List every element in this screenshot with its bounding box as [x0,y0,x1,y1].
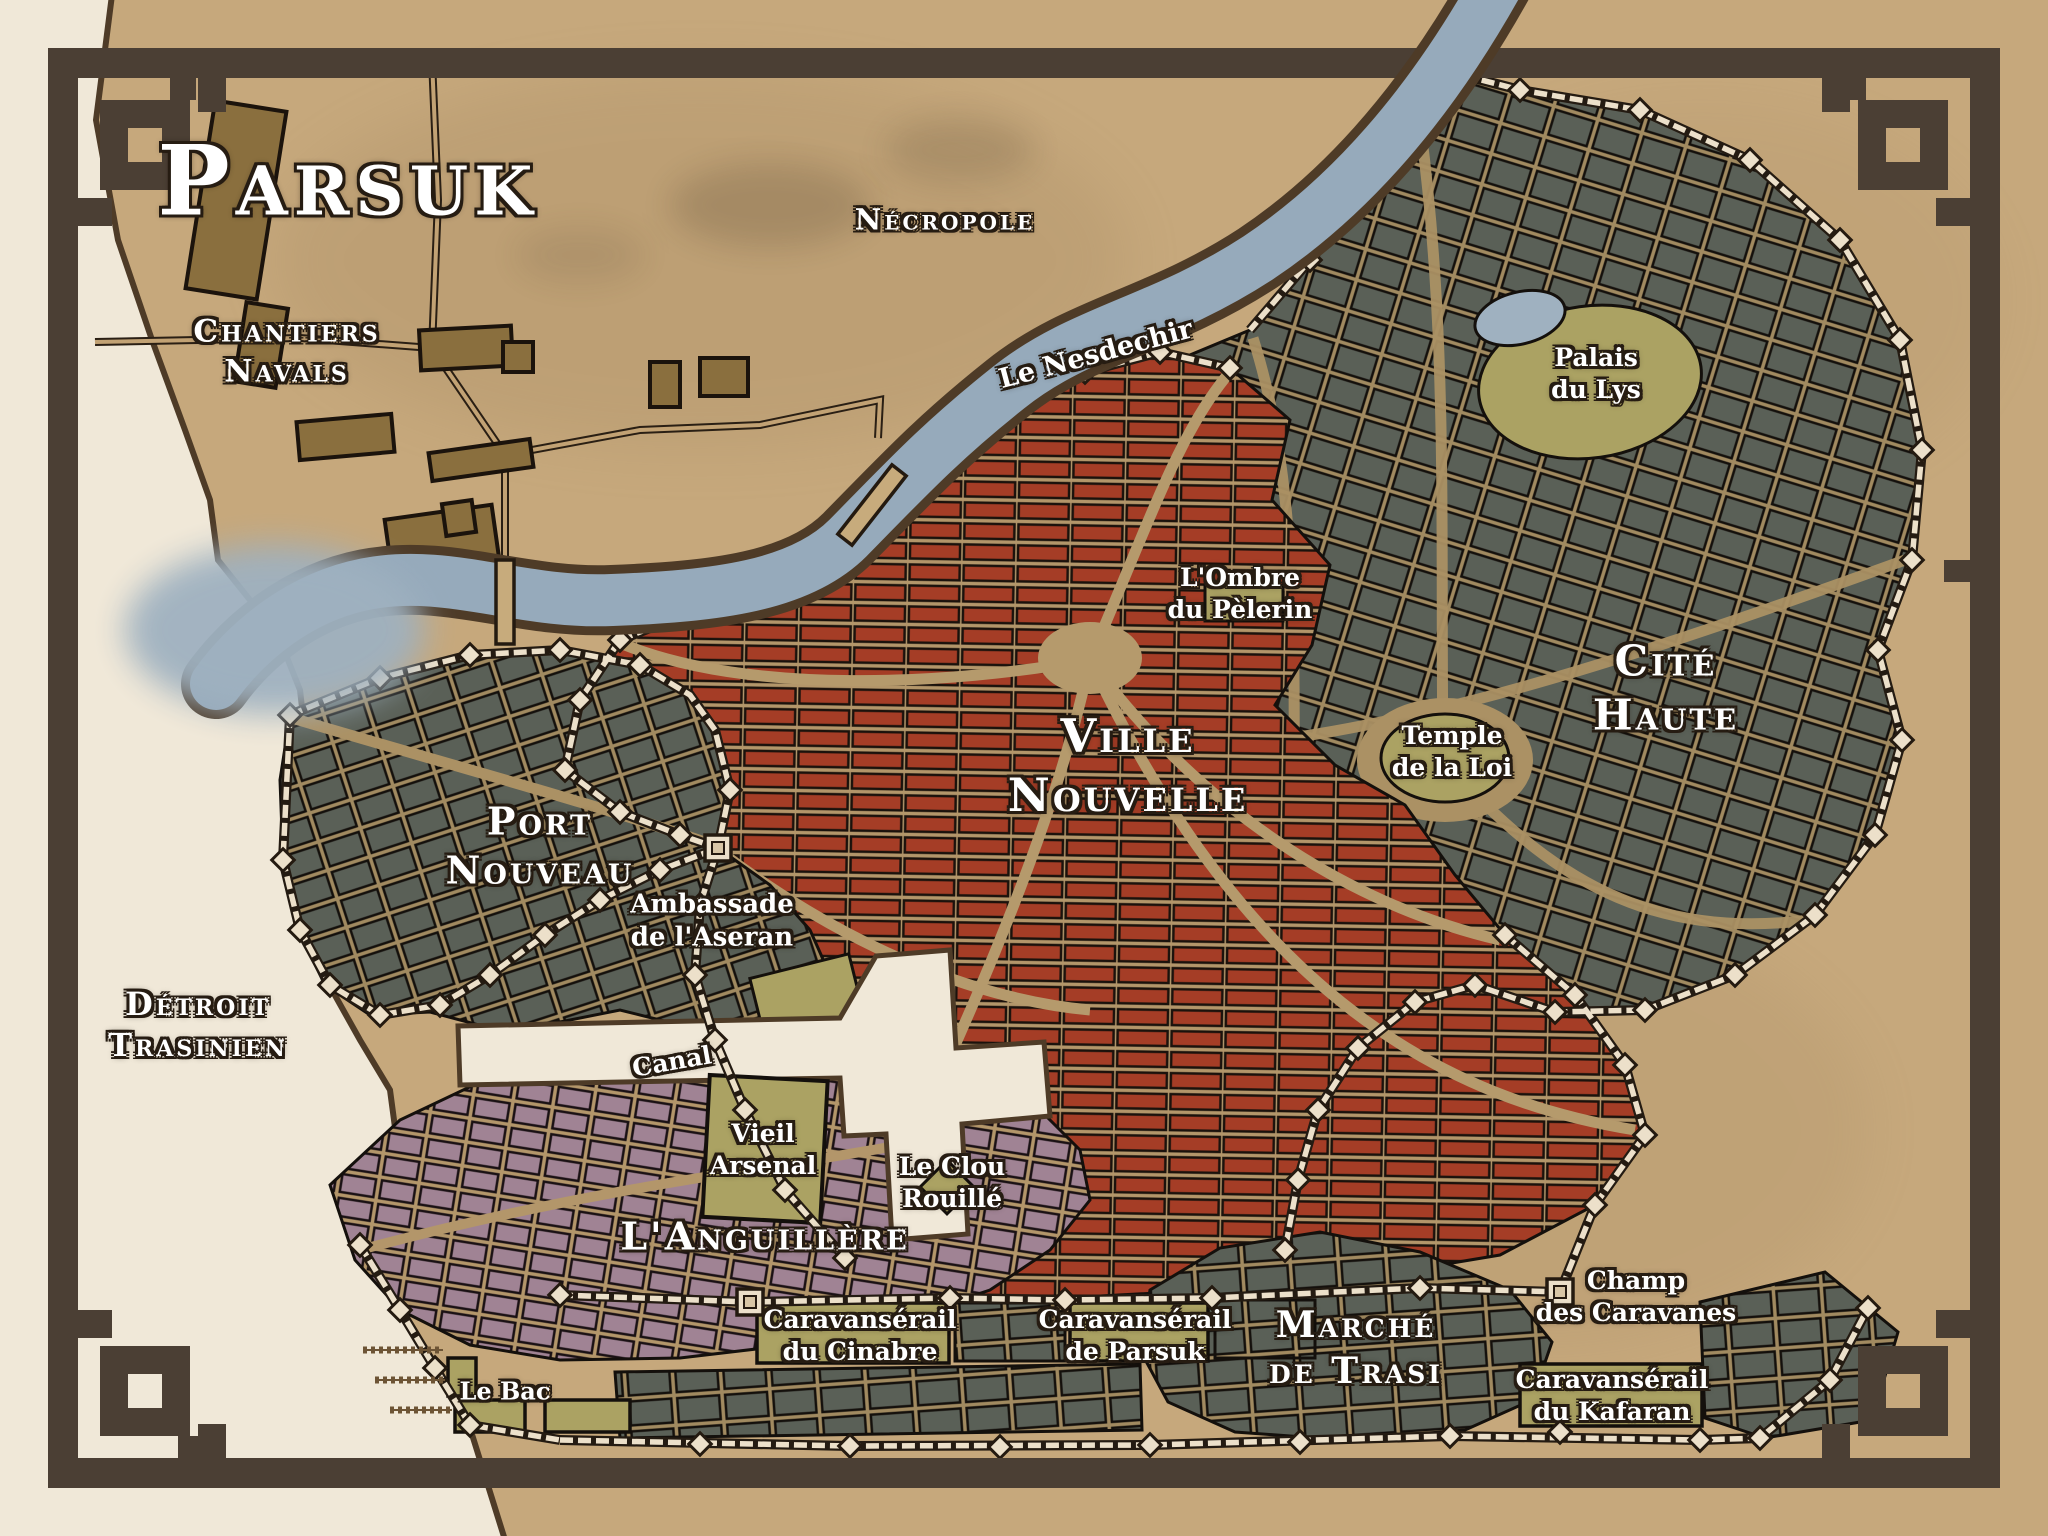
label-line: Port [487,798,593,843]
label-ville-nouvelle: Ville Nouvelle [1008,707,1248,825]
label-line: Champ [1587,1266,1685,1295]
label-palais-du-lys: Palais du Lys [1551,342,1641,406]
label-line: Caravansérail [764,1305,957,1334]
label-line: Vieil [731,1119,794,1148]
label-line: L'Ombre [1180,563,1300,592]
label-line: de la Loi [1392,753,1512,782]
label-line: Chantiers [193,313,380,349]
label-line: Marché [1276,1304,1437,1346]
label-line: Le Clou [899,1152,1005,1181]
label-line: Trasinien [108,1026,288,1064]
label-ambassade-aseran: Ambassade de l'Aseran [630,889,794,956]
label-necropole: Nécropole [855,201,1035,238]
map-title: Parsuk [158,121,539,244]
label-line: Ambassade [630,890,794,920]
fantasy-city-map: Parsuk Chantiers Navals Nécropole Le Nes… [0,0,2048,1536]
label-line: Haute [1593,690,1739,739]
label-line: Ville [1060,709,1195,763]
label-caravanserail-cinabre: Caravansérail du Cinabre [764,1304,957,1368]
label-line: de Trasi [1269,1350,1443,1392]
label-line: Caravansérail [1516,1365,1709,1394]
label-marche-de-trasi: Marché de Trasi [1269,1302,1443,1394]
label-le-bac: Le Bac [460,1377,551,1408]
label-line: du Cinabre [783,1337,938,1366]
label-line: Rouillé [902,1184,1002,1213]
label-champ-des-caravanes: Champ des Caravanes [1536,1265,1737,1329]
label-line: Détroit [125,985,271,1023]
label-line: Nouvelle [1008,768,1248,822]
label-port-nouveau: Port Nouveau [446,797,635,894]
label-detroit-trasinien: Détroit Trasinien [108,984,288,1066]
label-caravanserail-parsuk: Caravansérail de Parsuk [1039,1304,1232,1368]
label-line: Arsenal [710,1151,816,1180]
label-line: Navals [224,353,350,389]
label-line: Nouveau [446,847,635,892]
label-caravanserail-kafaran: Caravansérail du Kafaran [1516,1364,1709,1428]
label-line: Palais [1554,343,1638,372]
label-chantiers-navals: Chantiers Navals [193,312,380,391]
label-clou-rouille: Le Clou Rouillé [899,1151,1005,1215]
label-line: de Parsuk [1065,1337,1204,1366]
label-anguillere: L'Anguillère [620,1213,909,1262]
label-line: du Kafaran [1534,1397,1691,1426]
label-vieil-arsenal: Vieil Arsenal [710,1118,816,1182]
label-line: Temple [1402,721,1503,750]
label-cite-haute: Cité Haute [1593,634,1739,742]
label-line: du Pèlerin [1168,595,1313,624]
label-ombre-du-pelerin: L'Ombre du Pèlerin [1168,562,1313,626]
label-line: de l'Aseran [631,923,793,953]
label-line: Caravansérail [1039,1305,1232,1334]
label-line: des Caravanes [1536,1298,1737,1327]
label-line: Cité [1615,636,1718,685]
label-line: du Lys [1551,375,1641,404]
label-temple-de-la-loi: Temple de la Loi [1392,720,1512,784]
